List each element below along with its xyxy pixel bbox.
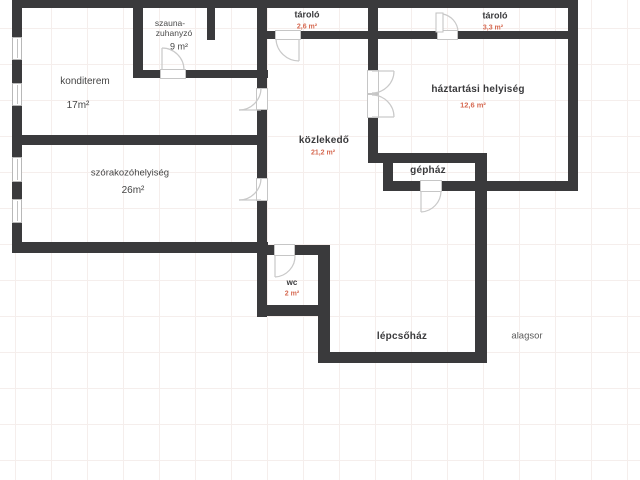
room-label-konditerem: konditerem	[60, 77, 109, 87]
door-opening-haztartasi-top	[367, 70, 379, 94]
wall-center-spine	[257, 0, 267, 317]
room-area-szauna: 9 m²	[170, 43, 188, 52]
door-arc-gephaz	[421, 191, 441, 212]
room-area-haztartasi: 12,6 m²	[460, 101, 486, 109]
wall-top-outer	[12, 0, 578, 8]
wall-wc-bottom	[257, 305, 330, 316]
door-opening-tarolo-large	[437, 30, 458, 40]
window-pane	[17, 159, 18, 180]
wall-konditerem-szorakozo-divider	[12, 135, 267, 145]
window-szorakozo-2	[12, 199, 22, 223]
door-arc-wc	[275, 255, 295, 277]
wall-tarolo-large-bottom	[368, 31, 578, 39]
room-label-haztartasi: háztartási helyiség	[431, 85, 524, 95]
door-opening-szorakozo	[256, 178, 268, 201]
room-area-tarolo-large: 3,3 m²	[483, 25, 503, 32]
door-opening-tarolo-small	[275, 30, 301, 40]
room-label-lepcsohaz: lépcsőház	[377, 332, 427, 342]
room-area-wc: 2 m²	[285, 291, 299, 298]
window-konditerem-1	[12, 37, 22, 60]
door-arc-tarolo-small	[276, 39, 299, 61]
room-area-konditerem: 17m²	[67, 101, 90, 111]
wall-wc-right	[318, 245, 330, 363]
room-label-tarolo-small: tároló	[294, 11, 319, 20]
window-konditerem-2	[12, 83, 22, 106]
room-label-szauna-line2: zuhanyzó	[156, 29, 192, 38]
wall-szorakozo-bottom	[12, 242, 268, 253]
door-opening-gephaz	[420, 180, 442, 192]
room-label-szauna-line1: szauna-	[155, 19, 185, 28]
door-opening-szauna	[160, 69, 186, 79]
window-pane	[17, 85, 18, 104]
door-opening-wc	[274, 244, 295, 256]
room-label-kozlekedo: közlekedő	[299, 136, 349, 146]
window-szorakozo-1	[12, 157, 22, 182]
door-opening-konditerem	[256, 88, 268, 110]
wall-szauna-divider	[207, 0, 215, 40]
room-area-tarolo-small: 2,6 m²	[297, 24, 317, 31]
wall-lepcsohaz-right	[475, 153, 487, 363]
floor-plan-canvas: szauna- zuhanyzó 9 m² konditerem 17m² sz…	[0, 0, 640, 480]
door-swings-layer	[0, 0, 640, 480]
window-pane	[17, 39, 18, 58]
window-pane	[17, 201, 18, 221]
wall-gephaz-left	[383, 153, 393, 191]
room-label-tarolo-large: tároló	[482, 12, 507, 21]
wall-lepcsohaz-bottom	[318, 352, 487, 363]
wall-szauna-left	[133, 0, 143, 78]
floor-label-alagsor: alagsor	[511, 331, 542, 341]
door-opening-haztartasi-bottom	[367, 94, 379, 118]
door-arc-tarolo-large	[443, 14, 458, 31]
room-label-szorakozohelyiseg: szórakozóhelyiség	[91, 168, 169, 178]
wall-szauna-bottom	[133, 70, 268, 78]
room-area-szorakozohelyiseg: 26m²	[122, 186, 145, 196]
room-label-wc: wc	[287, 279, 298, 287]
room-label-gephaz: gépház	[410, 166, 446, 176]
wall-right-outer	[568, 0, 578, 191]
room-area-kozlekedo: 21,2 m²	[311, 150, 335, 157]
